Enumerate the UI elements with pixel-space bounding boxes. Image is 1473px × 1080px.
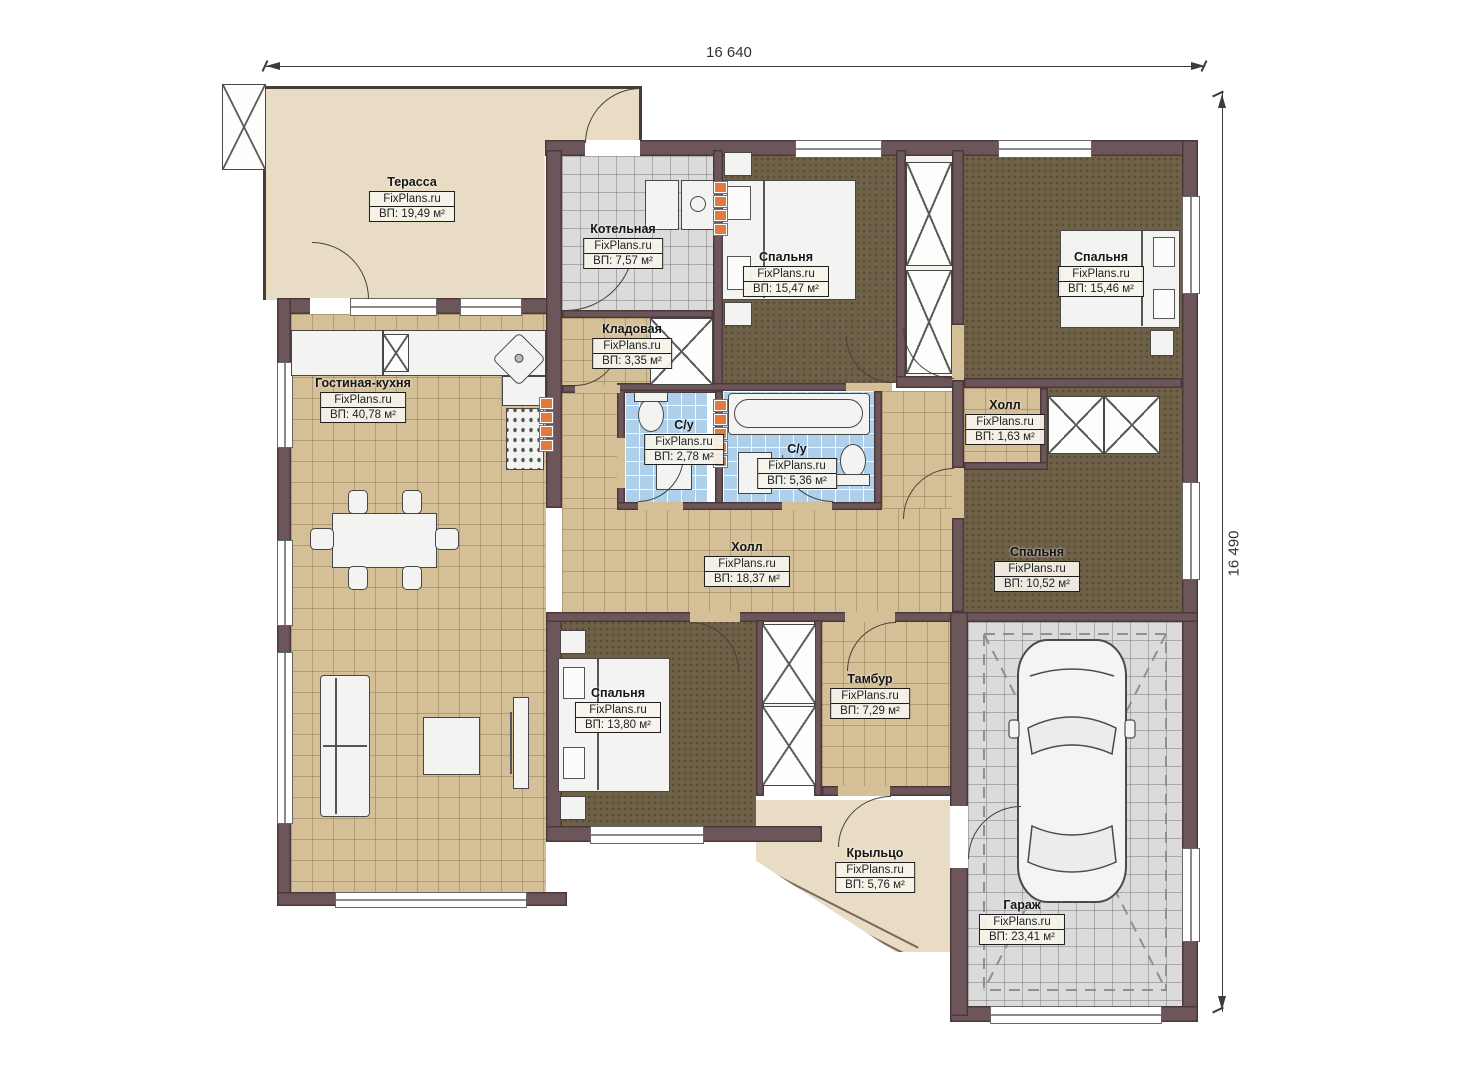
dimension-arrow-down bbox=[1218, 996, 1226, 1010]
kitchen-counter bbox=[291, 330, 383, 376]
watermark: FixPlans.ru bbox=[966, 415, 1044, 430]
room-info-box: FixPlans.ru ВП: 15,46 м² bbox=[1058, 266, 1144, 297]
room-area: ВП: 15,46 м² bbox=[1059, 282, 1143, 296]
chair-icon bbox=[402, 566, 422, 590]
room-name: Гостиная-кухня bbox=[315, 376, 411, 390]
room-label-bath-small: С/у FixPlans.ru ВП: 2,78 м² bbox=[644, 418, 724, 465]
coffee-table bbox=[423, 717, 480, 775]
nightstand bbox=[560, 630, 586, 654]
watermark: FixPlans.ru bbox=[705, 557, 789, 572]
window bbox=[795, 140, 882, 158]
watermark: FixPlans.ru bbox=[1059, 267, 1143, 282]
sofa-icon bbox=[320, 675, 370, 817]
chair-icon bbox=[348, 566, 368, 590]
watermark: FixPlans.ru bbox=[744, 267, 828, 282]
washing-machine-icon bbox=[681, 180, 715, 230]
tv-stand-icon bbox=[513, 697, 529, 789]
door-opening bbox=[575, 385, 620, 393]
room-info-box: FixPlans.ru ВП: 10,52 м² bbox=[994, 561, 1080, 592]
room-info-box: FixPlans.ru ВП: 18,37 м² bbox=[704, 556, 790, 587]
wall bbox=[874, 391, 882, 510]
garage-door bbox=[990, 1006, 1162, 1024]
room-info-box: FixPlans.ru ВП: 19,49 м² bbox=[369, 191, 455, 222]
chimney bbox=[222, 84, 266, 170]
radiator-cell bbox=[714, 224, 727, 235]
room-info-box: FixPlans.ru ВП: 1,63 м² bbox=[965, 414, 1045, 445]
room-label-boiler: Котельная FixPlans.ru ВП: 7,57 м² bbox=[583, 222, 663, 269]
dimension-line-top bbox=[265, 66, 1205, 67]
bathtub-icon bbox=[728, 393, 870, 435]
door-opening bbox=[838, 786, 890, 796]
sink-drain bbox=[513, 352, 526, 365]
window bbox=[335, 892, 527, 908]
window bbox=[277, 652, 293, 824]
room-area: ВП: 18,37 м² bbox=[705, 572, 789, 586]
radiator-icon bbox=[540, 398, 553, 451]
pillow bbox=[727, 186, 751, 220]
stove-icon bbox=[383, 334, 409, 372]
dining-table bbox=[332, 513, 437, 568]
room-label-tambour: Тамбур FixPlans.ru ВП: 7,29 м² bbox=[830, 672, 910, 719]
room-info-box: FixPlans.ru ВП: 7,57 м² bbox=[583, 238, 663, 269]
radiator-cell bbox=[714, 400, 727, 411]
watermark: FixPlans.ru bbox=[836, 863, 914, 878]
room-area: ВП: 23,41 м² bbox=[980, 930, 1064, 944]
room-info-box: FixPlans.ru ВП: 40,78 м² bbox=[320, 392, 406, 423]
room-name: Спальня bbox=[994, 545, 1080, 559]
watermark: FixPlans.ru bbox=[321, 393, 405, 408]
room-label-garage: Гараж FixPlans.ru ВП: 23,41 м² bbox=[979, 898, 1065, 945]
radiator-cell bbox=[540, 440, 553, 451]
room-label-hall-big: Холл FixPlans.ru ВП: 18,37 м² bbox=[704, 540, 790, 587]
room-area: ВП: 7,29 м² bbox=[831, 704, 909, 718]
watermark: FixPlans.ru bbox=[584, 239, 662, 254]
watermark: FixPlans.ru bbox=[576, 703, 660, 718]
door-opening bbox=[638, 502, 683, 510]
room-label-hall-small: Холл FixPlans.ru ВП: 1,63 м² bbox=[965, 398, 1045, 445]
wall bbox=[952, 150, 964, 325]
room-info-box: FixPlans.ru ВП: 23,41 м² bbox=[979, 914, 1065, 945]
room-area: ВП: 40,78 м² bbox=[321, 408, 405, 422]
radiator-icon bbox=[714, 182, 727, 235]
door-opening bbox=[690, 612, 740, 622]
radiator-cell bbox=[540, 426, 553, 437]
radiator-cell bbox=[540, 398, 553, 409]
window bbox=[277, 540, 293, 626]
terrace-border-top bbox=[263, 86, 642, 89]
room-info-box: FixPlans.ru ВП: 2,78 м² bbox=[644, 434, 724, 465]
room-label-bedroom-3: Спальня FixPlans.ru ВП: 10,52 м² bbox=[994, 545, 1080, 592]
door-opening bbox=[782, 502, 832, 510]
toilet-icon bbox=[840, 444, 866, 478]
room-name: Крыльцо bbox=[835, 846, 915, 860]
floor-plan: Терасса FixPlans.ru ВП: 19,49 м² Котельн… bbox=[0, 0, 1473, 1080]
oven-icon bbox=[506, 408, 544, 470]
chair-icon bbox=[310, 528, 334, 550]
room-name: Терасса bbox=[369, 175, 455, 189]
room-area: ВП: 5,36 м² bbox=[758, 474, 836, 488]
room-label-living-kitchen: Гостиная-кухня FixPlans.ru ВП: 40,78 м² bbox=[315, 376, 411, 423]
room-label-terrace: Терасса FixPlans.ru ВП: 19,49 м² bbox=[369, 175, 455, 222]
room-label-porch: Крыльцо FixPlans.ru ВП: 5,76 м² bbox=[835, 846, 915, 893]
nightstand bbox=[1150, 330, 1174, 356]
room-info-box: FixPlans.ru ВП: 5,36 м² bbox=[757, 458, 837, 489]
watermark: FixPlans.ru bbox=[758, 459, 836, 474]
room-label-bedroom-1: Спальня FixPlans.ru ВП: 15,47 м² bbox=[743, 250, 829, 297]
window bbox=[1182, 482, 1200, 580]
car-icon bbox=[1008, 634, 1136, 906]
porch-step-line bbox=[769, 884, 921, 963]
room-area: ВП: 5,76 м² bbox=[836, 878, 914, 892]
corridor-left-floor bbox=[562, 393, 617, 508]
window bbox=[1182, 848, 1200, 942]
washer-drum bbox=[690, 196, 706, 212]
room-name: Спальня bbox=[575, 686, 661, 700]
room-area: ВП: 13,80 м² bbox=[576, 718, 660, 732]
wall bbox=[546, 150, 562, 508]
room-area: ВП: 10,52 м² bbox=[995, 577, 1079, 591]
room-area: ВП: 19,49 м² bbox=[370, 207, 454, 221]
nightstand bbox=[724, 152, 752, 176]
room-label-bedroom-4: Спальня FixPlans.ru ВП: 13,80 м² bbox=[575, 686, 661, 733]
radiator-cell bbox=[714, 196, 727, 207]
room-area: ВП: 3,35 м² bbox=[593, 354, 671, 368]
door-opening bbox=[617, 438, 625, 488]
nightstand bbox=[560, 796, 586, 820]
wall bbox=[964, 378, 1182, 388]
dimension-width-label: 16 640 bbox=[700, 44, 758, 61]
window bbox=[590, 826, 704, 844]
radiator-cell bbox=[714, 182, 727, 193]
wardrobe-icon bbox=[1104, 396, 1160, 454]
room-name: Кладовая bbox=[592, 322, 672, 336]
wardrobe-icon bbox=[906, 162, 952, 266]
room-info-box: FixPlans.ru ВП: 13,80 м² bbox=[575, 702, 661, 733]
watermark: FixPlans.ru bbox=[593, 339, 671, 354]
tv-line bbox=[510, 712, 512, 774]
watermark: FixPlans.ru bbox=[980, 915, 1064, 930]
wardrobe-icon bbox=[762, 624, 816, 704]
pillow bbox=[563, 747, 585, 779]
toilet-tank bbox=[634, 392, 668, 402]
room-name: С/у bbox=[644, 418, 724, 432]
room-area: ВП: 2,78 м² bbox=[645, 450, 723, 464]
room-label-bath-big: С/у FixPlans.ru ВП: 5,36 м² bbox=[757, 442, 837, 489]
watermark: FixPlans.ru bbox=[645, 435, 723, 450]
wardrobe-icon bbox=[1048, 396, 1104, 454]
wall bbox=[896, 150, 906, 380]
chair-icon bbox=[348, 490, 368, 514]
dimension-arrow-right bbox=[1191, 62, 1205, 70]
room-info-box: FixPlans.ru ВП: 15,47 м² bbox=[743, 266, 829, 297]
dimension-arrow-up bbox=[1218, 94, 1226, 108]
wall bbox=[952, 518, 964, 612]
dimension-height-label: 16 490 bbox=[1225, 525, 1242, 583]
room-name: С/у bbox=[757, 442, 837, 456]
window bbox=[998, 140, 1092, 158]
room-name: Спальня bbox=[743, 250, 829, 264]
room-name: Тамбур bbox=[830, 672, 910, 686]
wall bbox=[952, 380, 964, 468]
watermark: FixPlans.ru bbox=[831, 689, 909, 704]
wardrobe-icon bbox=[762, 706, 816, 786]
wall bbox=[964, 462, 1048, 470]
room-name: Котельная bbox=[583, 222, 663, 236]
room-info-box: FixPlans.ru ВП: 5,76 м² bbox=[835, 862, 915, 893]
toilet-tank bbox=[836, 474, 870, 486]
window bbox=[350, 298, 437, 316]
watermark: FixPlans.ru bbox=[370, 192, 454, 207]
dimension-line-right bbox=[1222, 92, 1223, 1012]
room-area: ВП: 15,47 м² bbox=[744, 282, 828, 296]
room-label-storage: Кладовая FixPlans.ru ВП: 3,35 м² bbox=[592, 322, 672, 369]
room-area: ВП: 7,57 м² bbox=[584, 254, 662, 268]
door-opening bbox=[950, 806, 968, 868]
chair-icon bbox=[402, 490, 422, 514]
pillow bbox=[1153, 237, 1175, 267]
room-info-box: FixPlans.ru ВП: 3,35 м² bbox=[592, 338, 672, 369]
door-opening bbox=[846, 383, 892, 391]
radiator-cell bbox=[714, 210, 727, 221]
room-area: ВП: 1,63 м² bbox=[966, 430, 1044, 444]
room-name: Спальня bbox=[1058, 250, 1144, 264]
radiator-cell bbox=[540, 412, 553, 423]
room-info-box: FixPlans.ru ВП: 7,29 м² bbox=[830, 688, 910, 719]
window bbox=[1182, 196, 1200, 294]
door-opening bbox=[845, 612, 895, 622]
room-name: Холл bbox=[965, 398, 1045, 412]
pillow bbox=[1153, 289, 1175, 319]
watermark: FixPlans.ru bbox=[995, 562, 1079, 577]
dimension-arrow-left bbox=[266, 62, 280, 70]
nightstand bbox=[724, 302, 752, 326]
room-name: Холл bbox=[704, 540, 790, 554]
chair-icon bbox=[435, 528, 459, 550]
wall bbox=[562, 310, 713, 318]
room-name: Гараж bbox=[979, 898, 1065, 912]
window bbox=[460, 298, 522, 316]
sofa-line bbox=[323, 745, 367, 747]
room-label-bedroom-2: Спальня FixPlans.ru ВП: 15,46 м² bbox=[1058, 250, 1144, 297]
bathtub-inner bbox=[734, 399, 863, 428]
